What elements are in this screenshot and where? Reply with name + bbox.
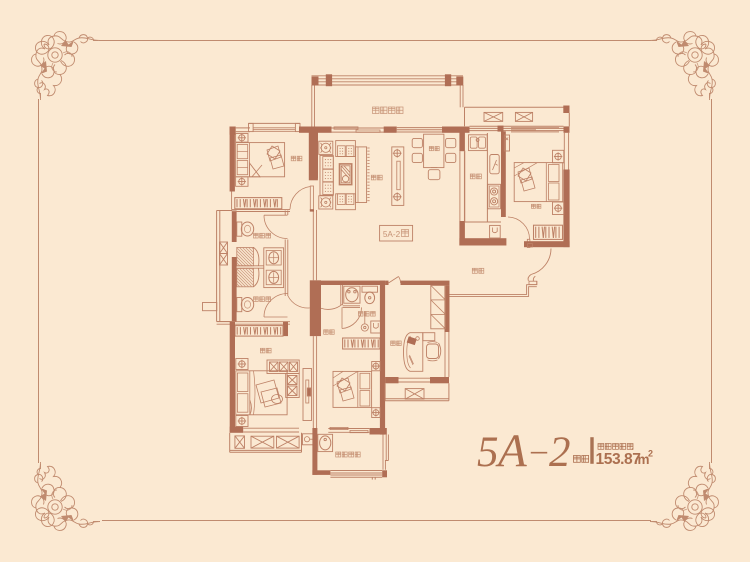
svg-text:5: 5 — [477, 429, 499, 476]
svg-text:153.87: 153.87 — [596, 451, 641, 468]
svg-text:2: 2 — [648, 449, 653, 459]
svg-text:A: A — [495, 425, 527, 477]
svg-text:5A-2: 5A-2 — [383, 230, 401, 239]
svg-text:–: – — [530, 431, 548, 467]
svg-text:2: 2 — [549, 429, 571, 476]
